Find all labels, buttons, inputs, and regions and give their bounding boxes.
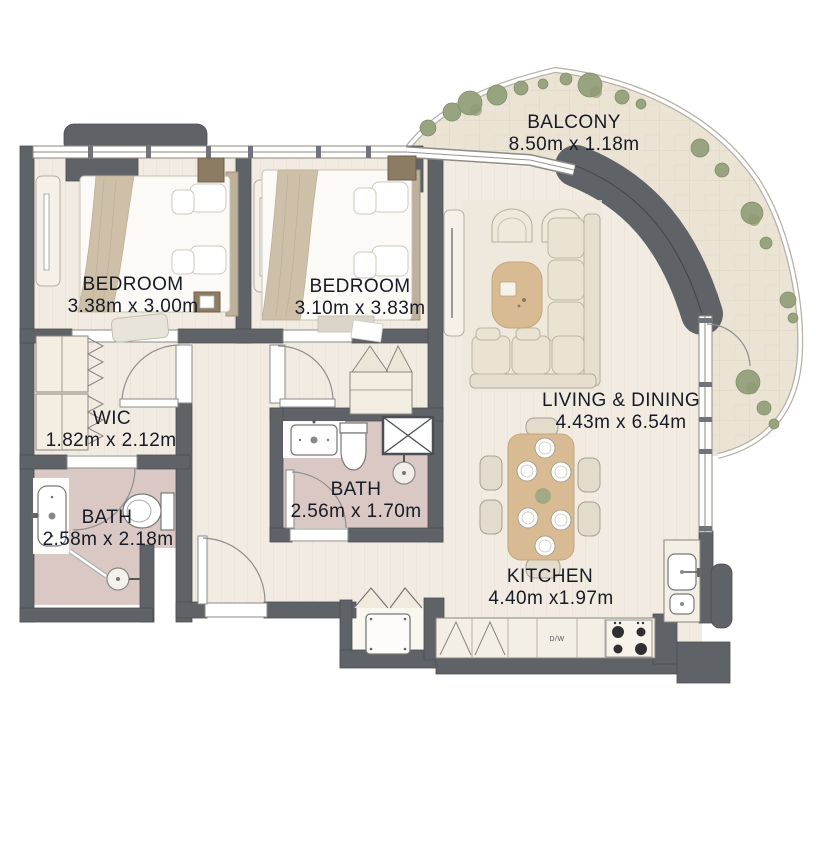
living-furniture [444, 200, 602, 392]
panel-slit [44, 194, 49, 270]
washer-dot [404, 618, 407, 621]
bed2-nightstand [388, 156, 416, 180]
wall-seg [270, 528, 292, 542]
wall-seg [348, 528, 443, 542]
toilet-icon [341, 433, 366, 470]
dining-chair [480, 500, 502, 534]
kitchen-faucet-base [697, 568, 702, 577]
bedroom-1-dims: 3.38m x 3.00m [68, 296, 199, 317]
stove-icon [606, 620, 652, 657]
vestibule-door-leaf [280, 399, 335, 407]
dining-chair [526, 418, 558, 436]
washer-dot [404, 648, 407, 651]
bath2-left-wall [270, 408, 283, 541]
bedroom-2-dims: 3.10m x 3.83m [295, 298, 426, 319]
bed1-bench [111, 313, 169, 343]
kitchen-label: KITCHEN [507, 566, 593, 587]
dishwasher-label: D/W [549, 636, 564, 643]
closet-icon [350, 372, 412, 414]
living-dining-label: LIVING & DINING [542, 390, 700, 411]
tv-console [444, 210, 464, 336]
toilet-tank [161, 493, 174, 530]
sink-drain [49, 513, 56, 520]
sink-drain [680, 570, 684, 574]
wic-dims: 1.82m x 2.12m [46, 430, 177, 451]
wall-seg [677, 642, 730, 683]
balcony-dims: 8.50m x 1.18m [509, 134, 640, 155]
wic-label: WIC [93, 408, 131, 429]
washer-icon [366, 614, 410, 654]
sink-faucet [31, 513, 38, 518]
sink-dot [327, 439, 329, 441]
sink-faucet [313, 421, 316, 424]
shower-drain [116, 577, 120, 581]
left-exterior-wall [20, 146, 34, 622]
entry-door-sill [205, 603, 267, 617]
toilet-tank [340, 423, 367, 433]
bed1-nightstand [198, 158, 224, 182]
wic-door-leaf [120, 399, 178, 407]
bath2-door-sill [290, 529, 348, 541]
bath1-door-frame [67, 456, 137, 468]
bath-1-label: BATH [82, 507, 133, 528]
sink-drain [311, 437, 318, 444]
sink-dot [51, 496, 54, 499]
dining-chair [578, 458, 600, 492]
dining-chair [480, 456, 502, 490]
bath-1-dims: 2.58m x 2.18m [43, 529, 174, 550]
floor-plan-page: D/W BALCONY 8.50m x 1.18m BEDROOM 3.38m … [0, 0, 816, 854]
wall-seg [137, 455, 190, 469]
sink-drain [680, 602, 684, 606]
bath-2-dims: 2.56m x 1.70m [291, 501, 422, 522]
centerpiece-plant [535, 488, 551, 504]
bed2-foot-towel [351, 320, 383, 342]
coffee-table-icon [492, 262, 542, 328]
wall-seg [178, 329, 283, 343]
bedroom-2-label: BEDROOM [310, 276, 411, 297]
kitchen-bottom-wall [436, 658, 677, 674]
bottom-left-wall [20, 608, 153, 622]
exterior-column [711, 564, 732, 628]
armchair-icon [492, 209, 532, 242]
bed1-side-paper [200, 296, 214, 308]
bath-2-label: BATH [331, 479, 382, 500]
sink-dot [299, 439, 301, 441]
washer-dot [370, 648, 373, 651]
balcony-label: BALCONY [527, 112, 621, 133]
washer-dot [370, 618, 373, 621]
living-dining-dims: 4.43m x 6.54m [556, 412, 687, 433]
entry-door-leaf [198, 536, 207, 604]
dining-chair [578, 502, 600, 536]
wall-seg [20, 455, 67, 469]
bedroom-1-label: BEDROOM [83, 274, 184, 295]
vestibule-door-frame [270, 345, 285, 403]
floor-plan-canvas: D/W BALCONY 8.50m x 1.18m BEDROOM 3.38m … [0, 0, 816, 854]
wic-door-frame [176, 345, 192, 403]
bedroom2-right-wall [428, 158, 443, 542]
corridor-left-wall [176, 403, 192, 622]
shower-drain [402, 471, 406, 475]
kitchen-dims: 4.40m x1.97m [488, 588, 613, 609]
